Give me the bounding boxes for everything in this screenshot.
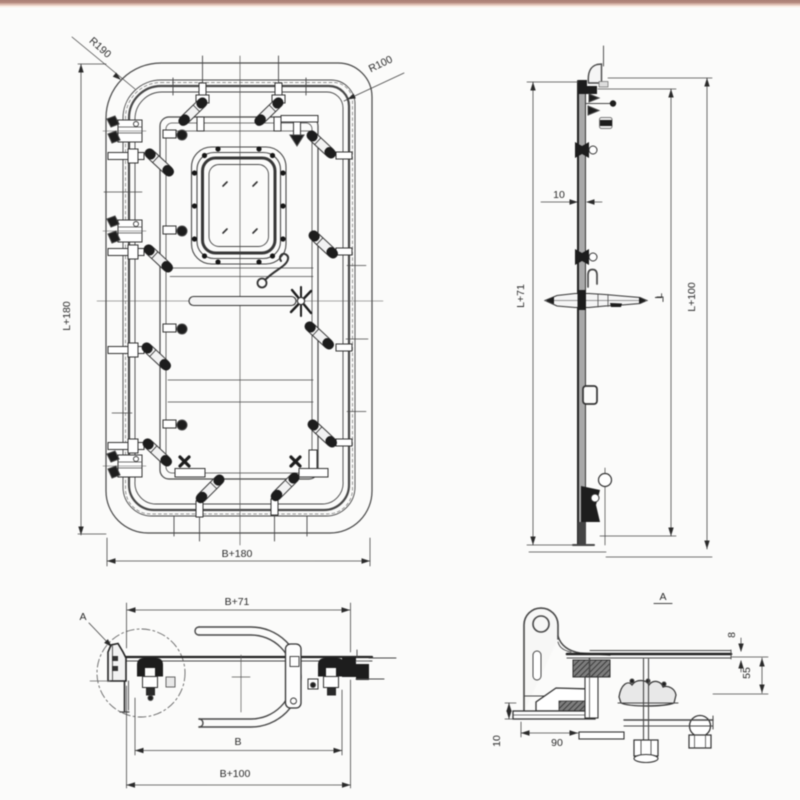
svg-text:55: 55 bbox=[741, 667, 753, 679]
svg-text:L+180: L+180 bbox=[61, 301, 73, 331]
svg-text:B+71: B+71 bbox=[225, 596, 250, 608]
svg-text:B+180: B+180 bbox=[222, 548, 253, 560]
svg-text:R190: R190 bbox=[87, 35, 114, 61]
svg-text:R100: R100 bbox=[367, 53, 395, 75]
svg-text:L: L bbox=[653, 293, 665, 299]
svg-text:L+71: L+71 bbox=[515, 284, 527, 308]
svg-text:8: 8 bbox=[726, 632, 738, 638]
svg-text:10: 10 bbox=[491, 735, 503, 747]
svg-text:90: 90 bbox=[551, 737, 563, 749]
svg-text:A: A bbox=[79, 611, 86, 623]
svg-text:B+100: B+100 bbox=[220, 768, 251, 780]
svg-text:A: A bbox=[659, 591, 666, 603]
svg-text:L+100: L+100 bbox=[686, 282, 698, 312]
svg-text:10: 10 bbox=[553, 189, 565, 201]
svg-text:B: B bbox=[234, 736, 241, 748]
